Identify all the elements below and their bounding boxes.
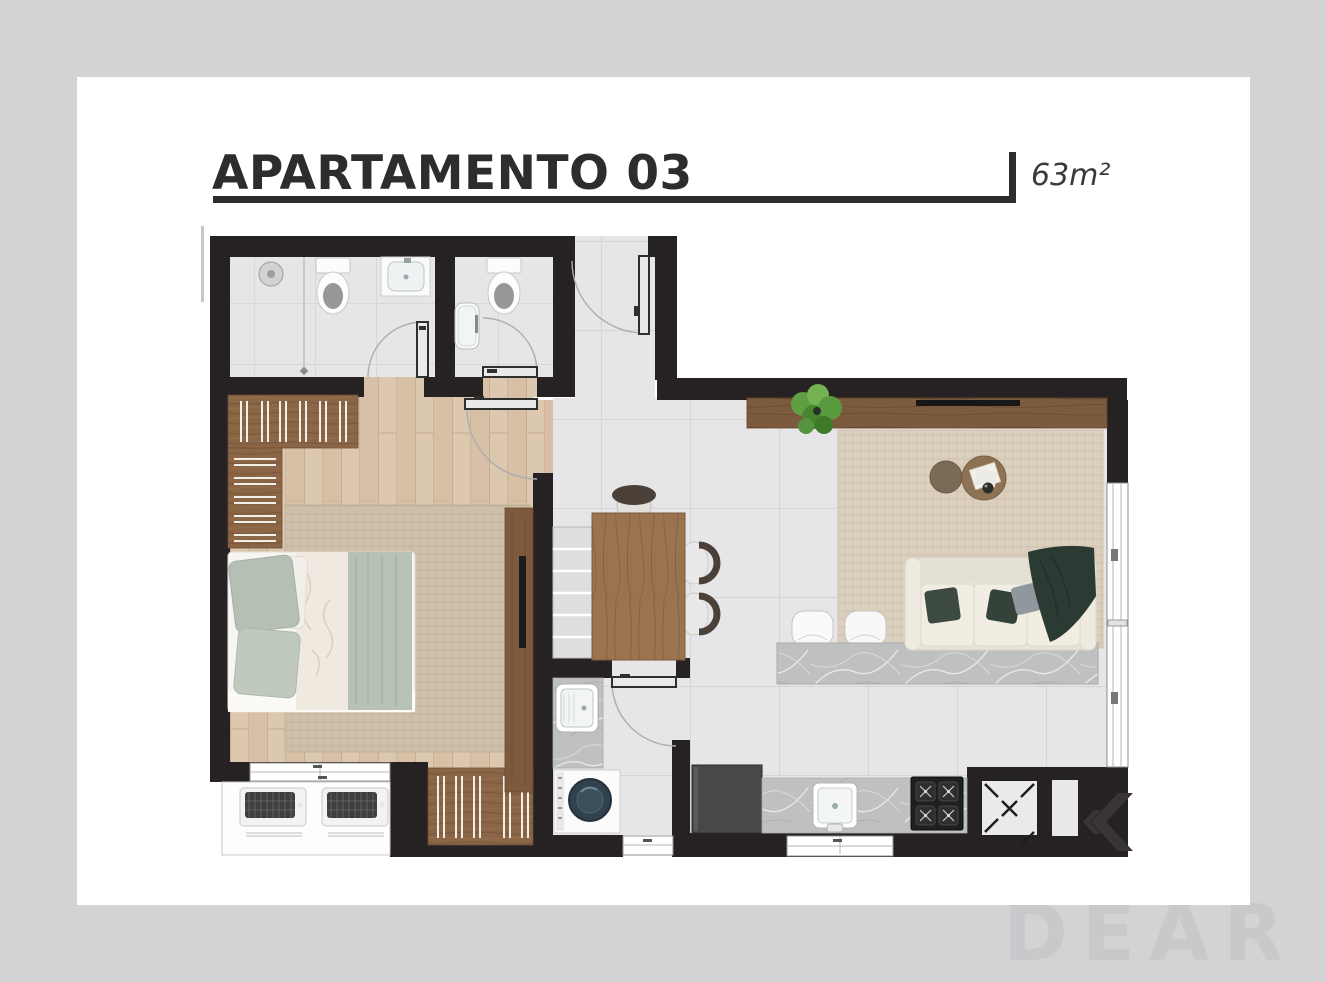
utility-shaft	[981, 780, 1078, 845]
balcony-window	[1107, 483, 1128, 767]
bathroom-vanity	[381, 257, 430, 296]
shaft-slot	[1052, 780, 1078, 836]
dining-chair-back	[612, 485, 656, 505]
faucet	[404, 258, 411, 263]
page-background: IDEAR APARTAMENTO 03 63m²	[0, 0, 1326, 982]
sofa	[905, 546, 1096, 650]
living-tv	[916, 400, 1020, 406]
cooktop	[911, 777, 963, 830]
kitchen-sink	[813, 783, 857, 832]
throw-blanket	[348, 552, 412, 710]
toilet	[316, 258, 350, 314]
laundry-window	[623, 836, 673, 855]
pillow	[228, 554, 300, 633]
sideboard-bench	[553, 527, 592, 658]
ac-units-area	[222, 782, 390, 855]
washing-machine	[554, 770, 620, 833]
floor-plan	[0, 0, 1326, 982]
shower-tray	[455, 303, 479, 349]
bed	[228, 552, 415, 712]
dining-table	[592, 513, 685, 660]
kitchen-window	[787, 836, 893, 856]
bedroom-tv	[519, 556, 526, 648]
pillow	[233, 627, 301, 698]
faucet	[827, 824, 843, 832]
sofa-pillow	[924, 587, 961, 624]
refrigerator	[692, 765, 762, 833]
toilet	[487, 258, 521, 314]
bedroom-dresser	[505, 508, 533, 792]
laundry-sink	[556, 684, 598, 732]
bedroom-window	[250, 763, 390, 781]
